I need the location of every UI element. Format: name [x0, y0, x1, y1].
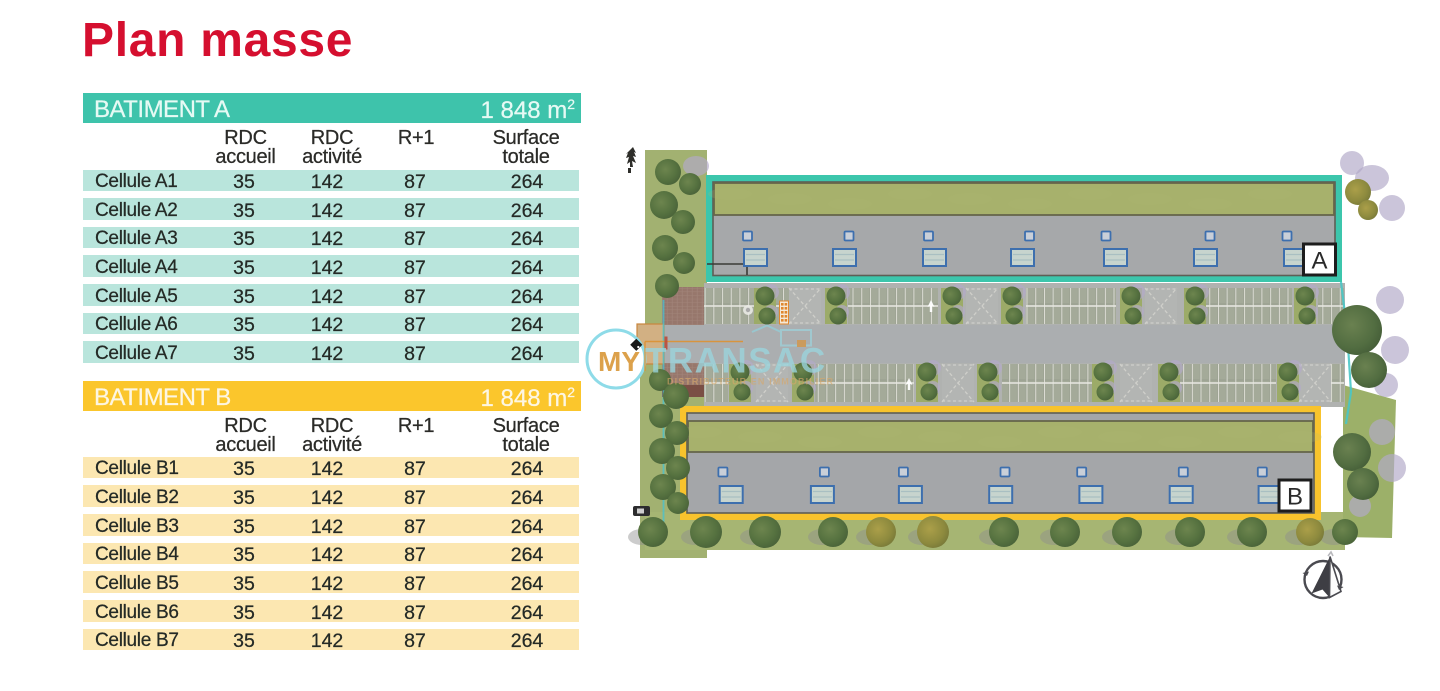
svg-text:MY: MY — [598, 346, 640, 377]
svg-text:TRANSAC: TRANSAC — [645, 342, 827, 381]
svg-text:B: B — [1287, 484, 1303, 511]
svg-text:A: A — [1311, 248, 1327, 275]
svg-text:DISTRIBUTEUR EN IMMOBILIER: DISTRIBUTEUR EN IMMOBILIER — [667, 377, 834, 387]
